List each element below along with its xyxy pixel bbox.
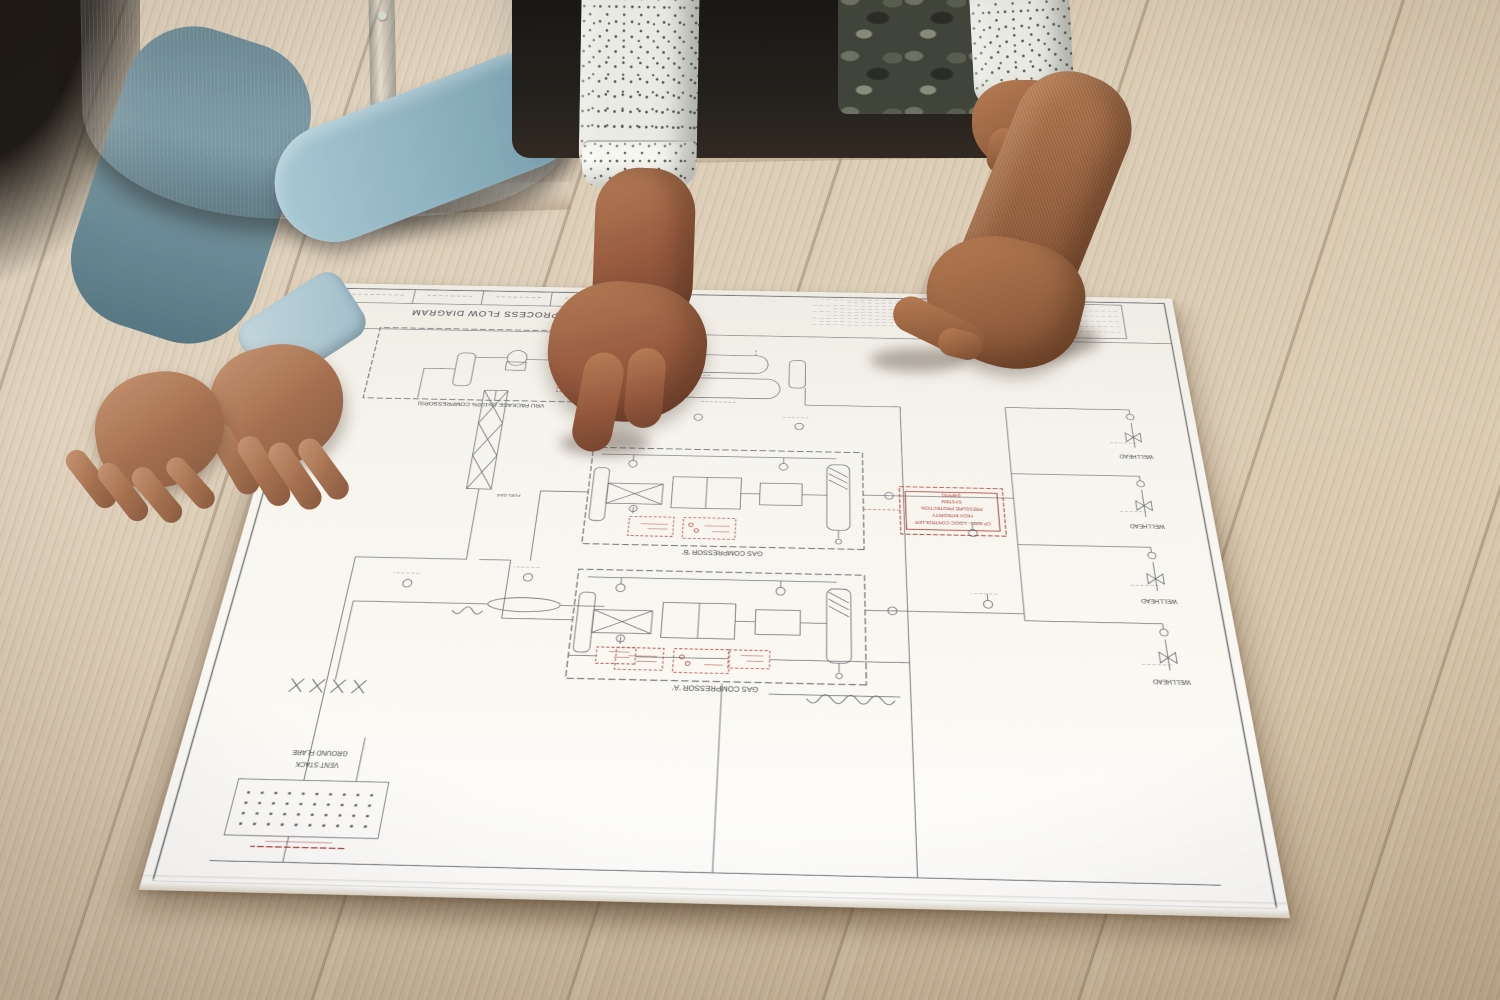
fuel-gas-label: FUEL GAS <box>497 493 521 498</box>
wellhead-label: WELLHEAD <box>1119 453 1154 459</box>
gas-compressor-b-label: GAS COMPRESSOR 'B' <box>682 548 763 556</box>
vent-stack-label: VENT STACK <box>295 760 340 768</box>
gas-compressor-a: GAS COMPRESSOR 'A' <box>564 569 866 695</box>
hipps-line3: PRESSURE PROTECTION <box>920 505 983 511</box>
photo-scene: OPAL PROCESS FLOW DIAGRAM NOTES <box>0 0 1500 1000</box>
red-revision-note <box>250 846 344 848</box>
wellhead-1: WELLHEAD <box>1144 623 1191 685</box>
wellhead-3: WELLHEAD <box>1122 476 1165 529</box>
hipps-line5: (HIPPS) <box>941 492 960 497</box>
hipps-line2: HIGH INTEGRITY <box>931 512 973 518</box>
gas-compressor-a-label: GAS COMPRESSOR 'A' <box>672 683 758 692</box>
wellhead-group: WELLHEAD WELLHEAD WELLHEAD WELLHEAD <box>1112 410 1191 686</box>
hipps-controller-box: CP-9000 - LOGIC CONTROLLER HIGH INTEGRIT… <box>863 486 1006 536</box>
wellhead-label: WELLHEAD <box>1140 597 1178 604</box>
struck-out-text <box>289 679 367 694</box>
wellhead-label: WELLHEAD <box>1129 523 1165 530</box>
wellhead-4: WELLHEAD <box>1112 410 1154 460</box>
wellhead-label: WELLHEAD <box>1152 677 1191 685</box>
red-instrument-callouts <box>567 646 910 672</box>
hipps-line1: CP-9000 - LOGIC CONTROLLER <box>914 519 991 526</box>
gas-compressor-b: GAS COMPRESSOR 'B' <box>581 447 864 558</box>
main-piping <box>209 379 1220 885</box>
flare-vent-area: VENT STACK GROUND FLARE <box>221 593 605 855</box>
flare-tip-symbol <box>487 597 561 612</box>
ground-flare-label: GROUND FLARE <box>292 748 349 757</box>
wellhead-2: WELLHEAD <box>1132 547 1177 604</box>
hipps-line4: SYSTEM <box>941 498 962 503</box>
scattered-instruments <box>378 398 1174 665</box>
fuel-gas-column: FUEL GAS <box>304 389 537 785</box>
shirt-button <box>378 11 387 20</box>
flare-burner-dots <box>234 792 373 826</box>
